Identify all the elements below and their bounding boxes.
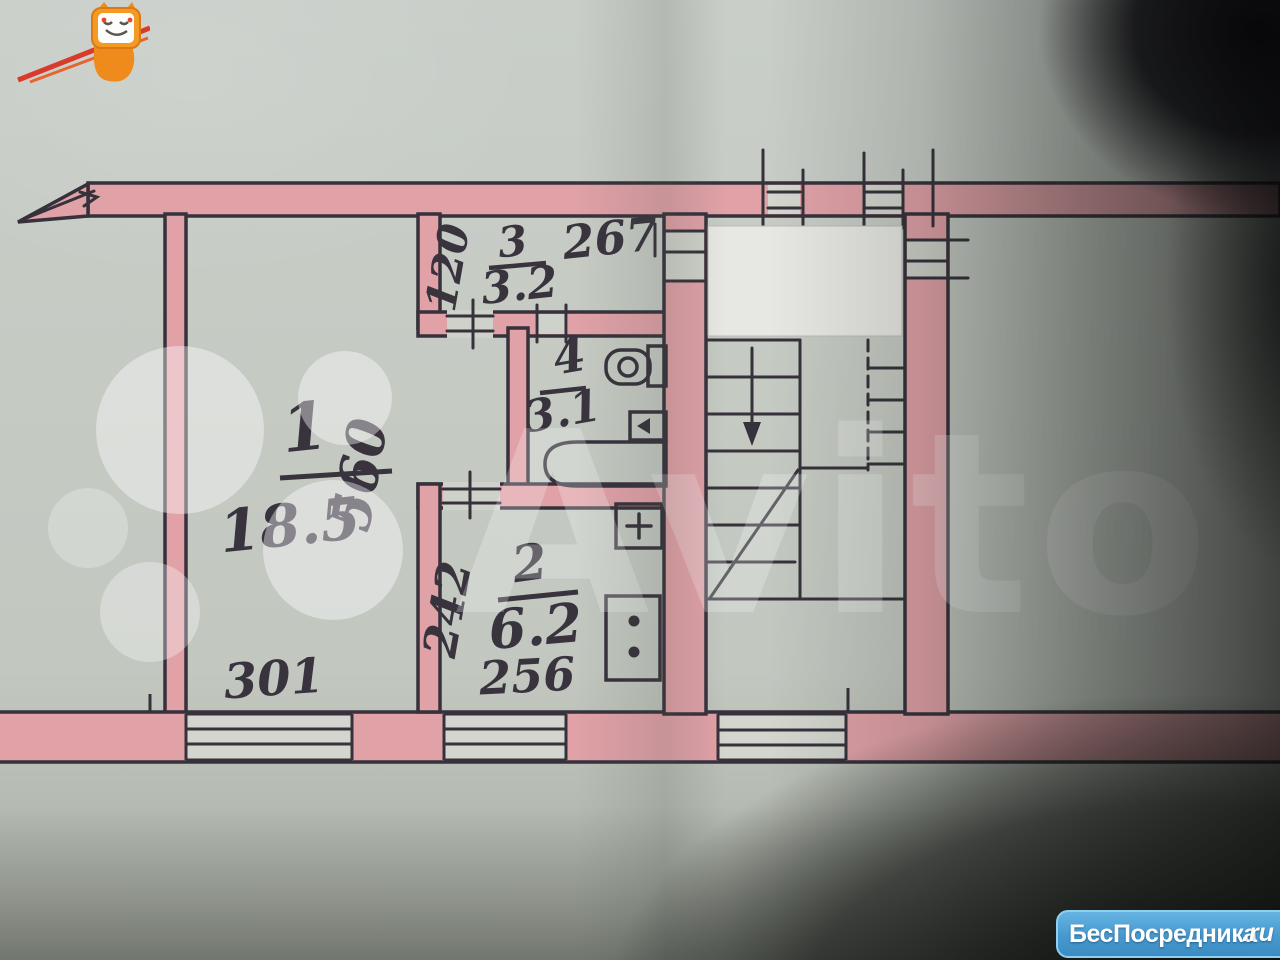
watermark-text: Avito: [455, 379, 1215, 672]
floor-plan-drawing: 1 18.5 560 301 2 6.2 242 256 3 3.2 120 2…: [0, 0, 1280, 960]
watermark-dot: [263, 480, 403, 620]
watermark-dot: [48, 488, 128, 568]
watermark-dot: [298, 351, 392, 445]
window-kitchen: [444, 714, 566, 760]
bespossrednika-domain-suffix: .ru: [1242, 919, 1274, 948]
watermark-dot: [100, 562, 200, 662]
bespossrednika-brand-text: БесПосредника: [1058, 920, 1257, 949]
hall-width-dim: 267: [559, 206, 661, 270]
floor-plan-photo: 1 18.5 560 301 2 6.2 242 256 3 3.2 120 2…: [0, 0, 1280, 960]
room3-area: 3.2: [479, 256, 560, 315]
room1-width-dim: 301: [222, 648, 326, 711]
watermark-dot: [96, 346, 264, 514]
window-room1: [186, 714, 352, 760]
white-cover-patch: [708, 226, 902, 336]
window-stairwell: [718, 714, 846, 760]
top-exterior-wall: [88, 183, 1280, 216]
